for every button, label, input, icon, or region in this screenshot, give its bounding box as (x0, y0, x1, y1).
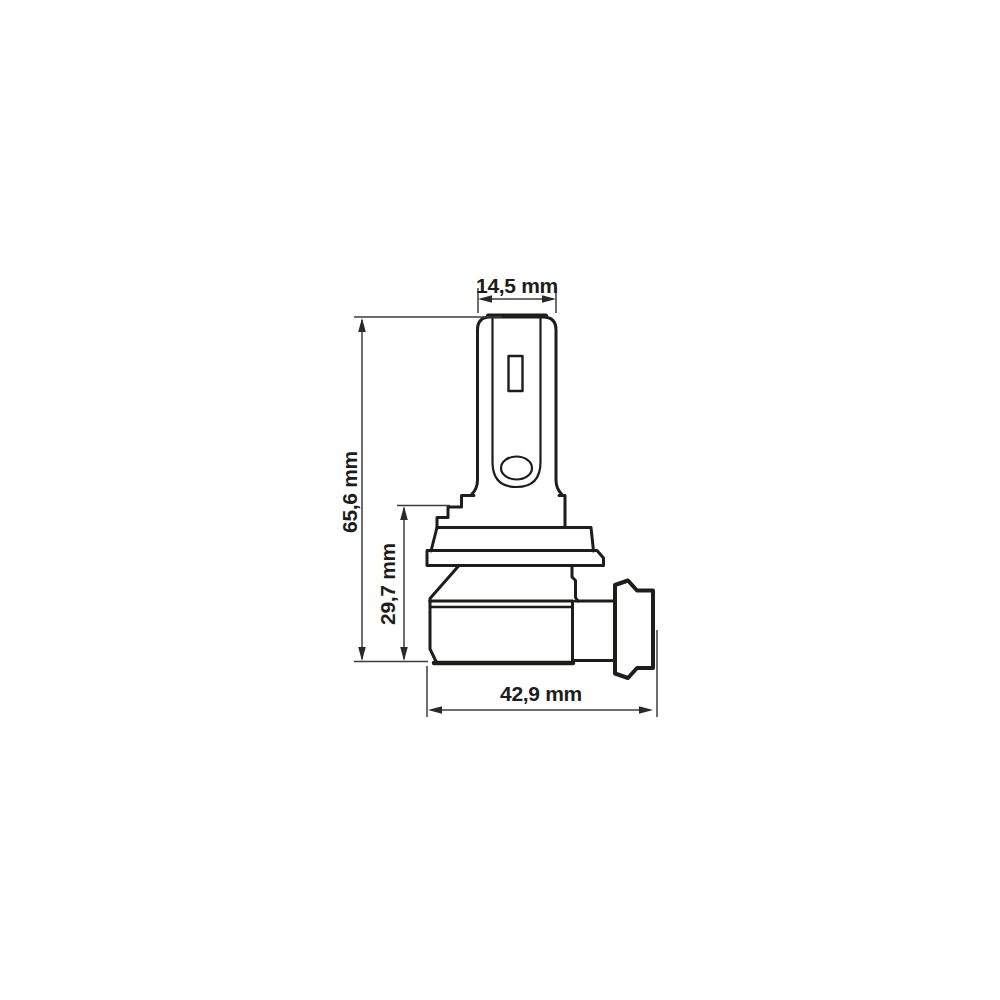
dimension-label-top-width: 14,5 mm (476, 274, 558, 298)
body-right-edge (572, 566, 578, 602)
dimension-label-total-height: 65,6 mm (338, 451, 362, 533)
led-chip-window (509, 356, 523, 391)
bulb-technical-drawing (0, 0, 1000, 1000)
bulb-outline (427, 316, 653, 679)
arrow-down-icon (358, 647, 366, 661)
bulb-inner-capsule (493, 318, 541, 487)
bulb-inner-reflector (501, 457, 532, 480)
bulb-tube-outline (472, 317, 562, 494)
dimension-arrowheads (358, 295, 653, 714)
dimension-label-base-height: 29,7 mm (376, 543, 400, 625)
arrow-left-icon (428, 706, 442, 714)
base-step-right (559, 496, 565, 528)
connector-plug-outline (615, 581, 653, 679)
collar-trapezoid (431, 528, 594, 552)
body-left-slope (430, 566, 459, 602)
technical-drawing-page: 14,5 mm 65,6 mm 29,7 mm 42,9 mm (0, 0, 1000, 1000)
arrow-right-icon (639, 706, 653, 714)
base-box-left-edge (430, 601, 437, 663)
dimension-label-base-width: 42,9 mm (500, 682, 582, 706)
mounting-flange (427, 551, 604, 566)
base-key-staircase (437, 496, 474, 529)
dimension-lines (354, 288, 657, 717)
arrow-up-icon (400, 506, 408, 520)
arrow-up-icon (358, 318, 366, 332)
arrow-down-icon (400, 647, 408, 661)
